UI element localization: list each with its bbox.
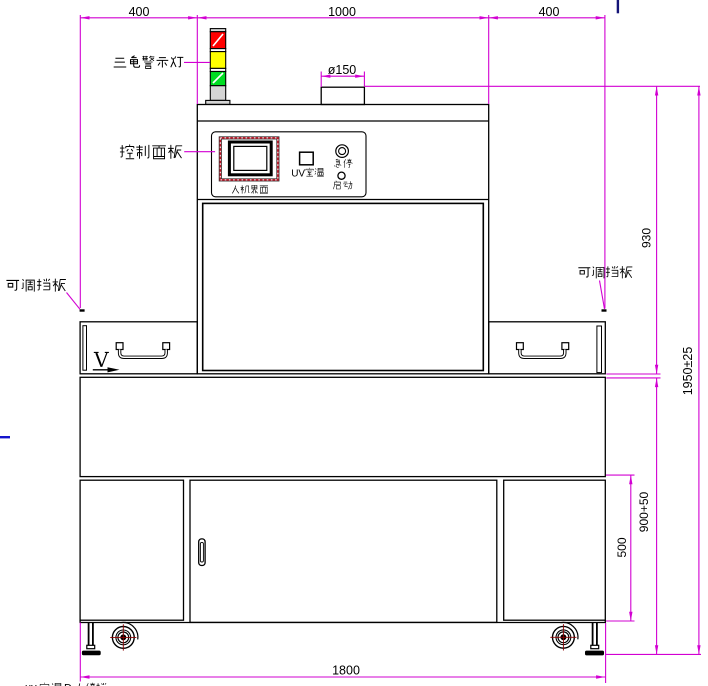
svg-text:1800: 1800 — [332, 664, 360, 678]
svg-text:UV: UV — [291, 168, 305, 179]
svg-text:930: 930 — [640, 228, 654, 248]
svg-text:1000: 1000 — [328, 5, 356, 19]
svg-text:ø150: ø150 — [328, 63, 357, 77]
svg-text:400: 400 — [539, 5, 560, 19]
svg-text:1950±25: 1950±25 — [681, 347, 695, 396]
svg-text:400: 400 — [129, 5, 150, 19]
svg-text:500: 500 — [615, 537, 629, 557]
svg-text:uv: uv — [25, 682, 37, 686]
svg-text:D: D — [64, 683, 72, 686]
svg-text:900+50: 900+50 — [637, 491, 651, 532]
